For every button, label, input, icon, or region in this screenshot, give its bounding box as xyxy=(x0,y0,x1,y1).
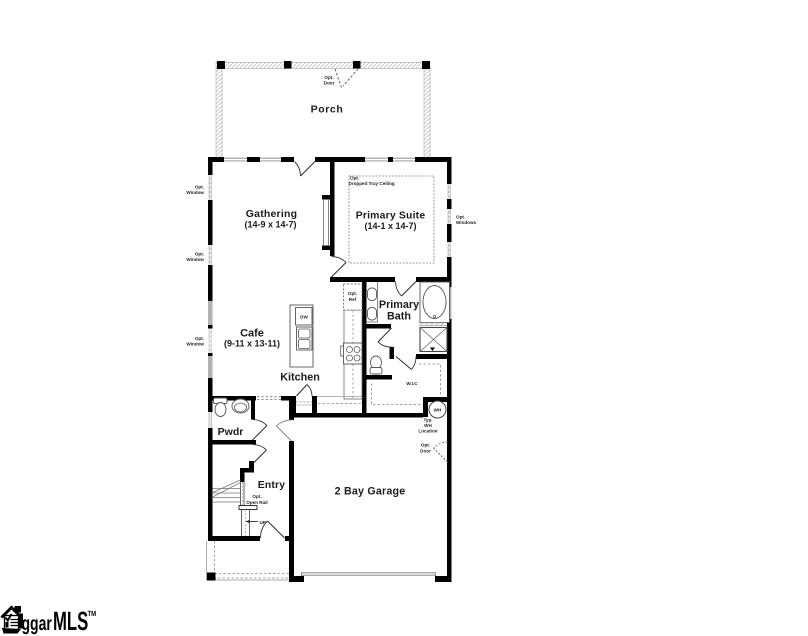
svg-text:Ref: Ref xyxy=(349,297,357,302)
svg-text:(14-1 x 14-7): (14-1 x 14-7) xyxy=(364,221,416,231)
svg-text:Opt.: Opt. xyxy=(195,251,204,256)
svg-text:Typ.: Typ. xyxy=(423,418,432,423)
svg-text:Opt.: Opt. xyxy=(195,336,204,341)
svg-text:Window: Window xyxy=(186,342,204,347)
svg-text:Bath: Bath xyxy=(387,311,411,323)
svg-text:Entry: Entry xyxy=(258,480,286,491)
svg-text:Opt.: Opt. xyxy=(350,175,359,180)
svg-text:DW: DW xyxy=(300,314,308,319)
svg-text:Porch: Porch xyxy=(311,104,344,116)
svg-text:Windows: Windows xyxy=(456,220,477,225)
svg-text:W.I.C: W.I.C xyxy=(406,381,418,386)
svg-text:ggar: ggar xyxy=(22,613,52,635)
svg-text:Primary: Primary xyxy=(379,299,419,311)
svg-text:2 Bay Garage: 2 Bay Garage xyxy=(335,486,406,498)
svg-text:Window: Window xyxy=(186,190,204,195)
svg-text:Opt.: Opt. xyxy=(456,214,465,219)
svg-text:Location: Location xyxy=(418,429,437,434)
svg-text:Open Rail: Open Rail xyxy=(246,500,267,505)
svg-text:Gathering: Gathering xyxy=(246,208,297,220)
svg-text:(14-9 x 14-7): (14-9 x 14-7) xyxy=(244,220,296,230)
svg-text:Door: Door xyxy=(420,448,431,453)
svg-text:Window: Window xyxy=(186,257,204,262)
svg-text:Opt.: Opt. xyxy=(421,443,430,448)
svg-text:Opt.: Opt. xyxy=(195,184,204,189)
svg-text:Opt.: Opt. xyxy=(348,291,357,296)
svg-text:(9-11 x 13-11): (9-11 x 13-11) xyxy=(224,339,280,349)
svg-text:Opt.: Opt. xyxy=(252,494,261,499)
svg-text:TM: TM xyxy=(88,609,97,618)
svg-text:Dropped Tray Ceiling: Dropped Tray Ceiling xyxy=(349,181,395,186)
svg-text:MLS: MLS xyxy=(53,606,88,636)
svg-text:Kitchen: Kitchen xyxy=(280,372,320,384)
svg-text:Primary Suite: Primary Suite xyxy=(356,211,426,222)
svg-text:Door: Door xyxy=(324,81,335,86)
svg-text:Pwdr: Pwdr xyxy=(218,426,244,438)
svg-text:Opt.: Opt. xyxy=(324,75,333,80)
svg-text:WH: WH xyxy=(424,423,432,428)
svg-text:WH: WH xyxy=(434,407,442,412)
